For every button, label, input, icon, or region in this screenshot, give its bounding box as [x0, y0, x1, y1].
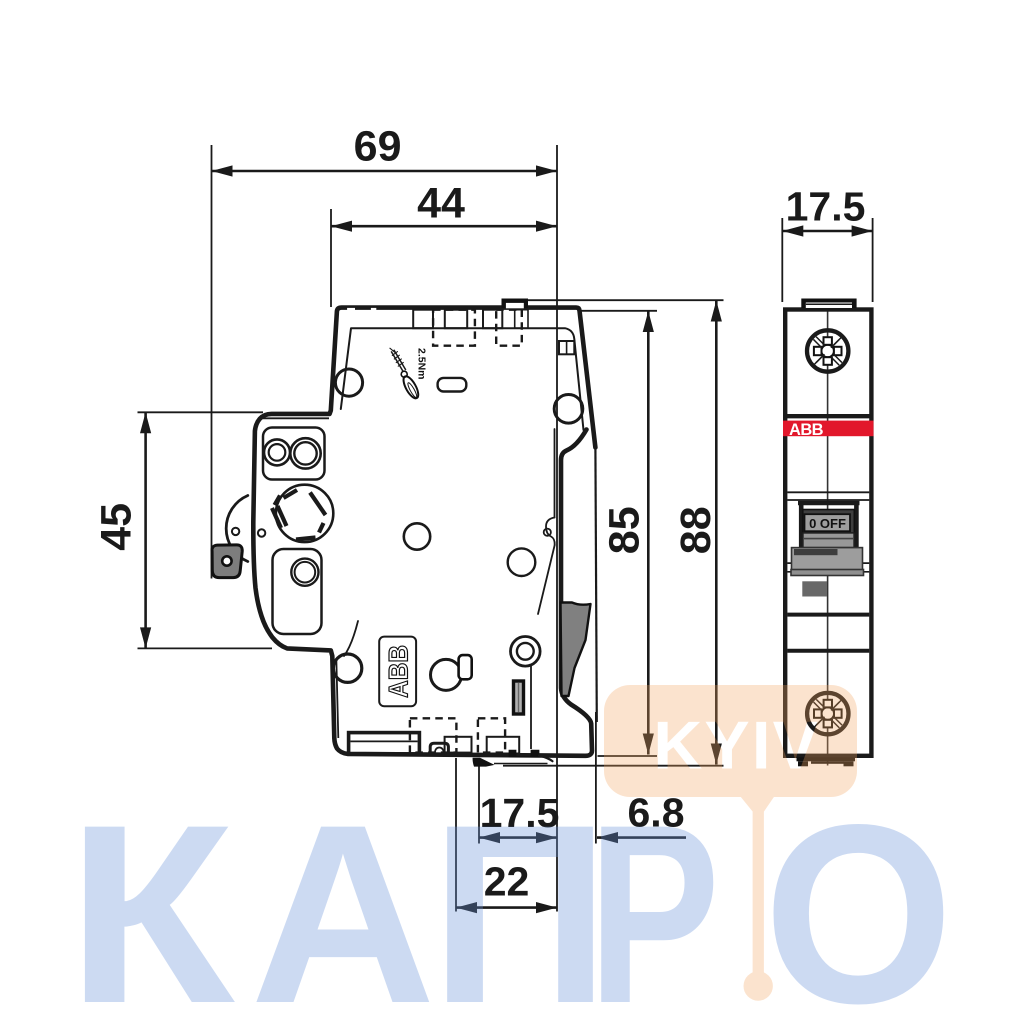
svg-text:0 OFF: 0 OFF: [809, 516, 846, 531]
svg-text:85: 85: [601, 506, 649, 554]
svg-text:Р: Р: [588, 772, 720, 1024]
svg-text:ABB: ABB: [789, 421, 824, 439]
svg-text:К: К: [67, 772, 236, 1024]
svg-text:ABB: ABB: [384, 645, 414, 698]
svg-text:П: П: [431, 772, 610, 1024]
svg-text:А: А: [250, 772, 436, 1024]
svg-text:69: 69: [354, 123, 402, 171]
svg-text:44: 44: [417, 180, 465, 228]
svg-text:45: 45: [93, 503, 141, 551]
svg-text:О: О: [764, 772, 954, 1024]
svg-text:17.5: 17.5: [786, 184, 866, 230]
svg-text:88: 88: [672, 506, 720, 554]
svg-text:2.5Nm: 2.5Nm: [416, 348, 428, 380]
